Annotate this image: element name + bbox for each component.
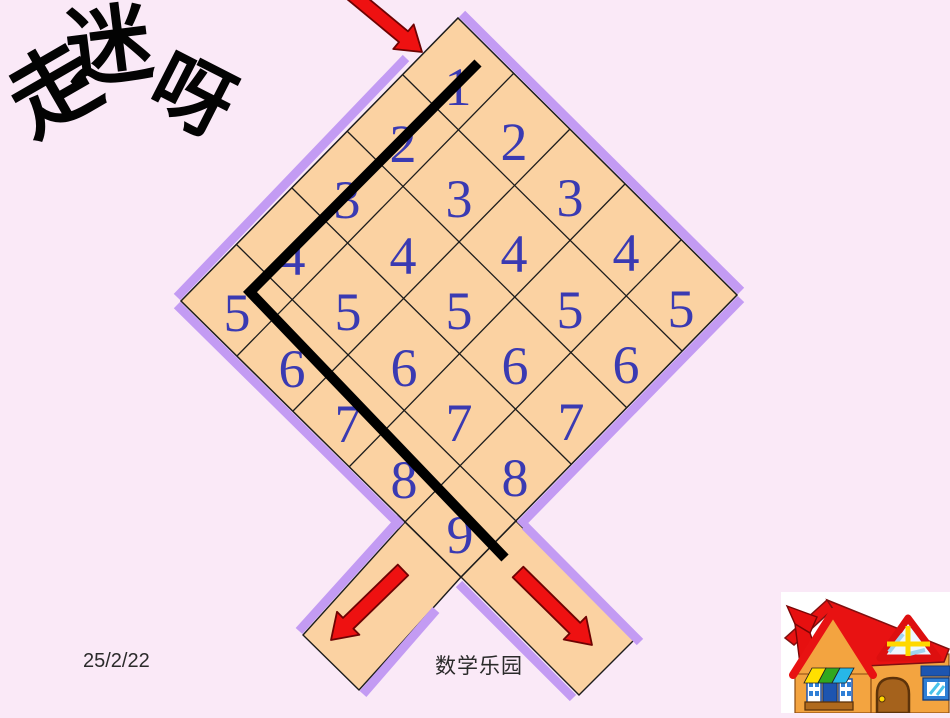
entry-arrow-icon bbox=[348, 0, 423, 52]
maze-cell-number: 5 bbox=[557, 280, 584, 340]
maze-cell-number: 7 bbox=[558, 392, 585, 452]
maze-cell-number: 6 bbox=[391, 338, 418, 398]
maze-cell-number: 3 bbox=[557, 168, 584, 228]
house-illustration bbox=[781, 592, 950, 713]
left-window-glass bbox=[847, 691, 851, 696]
house-door bbox=[877, 678, 909, 713]
maze-cell-number: 5 bbox=[668, 279, 695, 339]
maze-cell-number: 6 bbox=[613, 335, 640, 395]
maze-cell-number: 3 bbox=[446, 169, 473, 229]
house-icon bbox=[781, 592, 950, 713]
left-window-glass bbox=[809, 691, 813, 696]
house-door-knob bbox=[879, 696, 885, 702]
maze-cell-number: 4 bbox=[501, 224, 528, 284]
slide-canvas: 1 2 3 4 5 2 3 4 5 6 3 4 5 6 7 4 5 6 7 8 … bbox=[0, 0, 950, 713]
maze-cell-number: 5 bbox=[335, 282, 362, 342]
maze-cell-number: 2 bbox=[501, 112, 528, 172]
slide-date: 25/2/22 bbox=[83, 650, 150, 673]
left-window-glass bbox=[847, 682, 851, 687]
maze-cell-number: 4 bbox=[613, 223, 640, 283]
left-window-glass bbox=[841, 691, 845, 696]
maze-cell-number: 4 bbox=[390, 226, 417, 286]
maze-cell-number: 6 bbox=[502, 336, 529, 396]
maze-cell-number: 5 bbox=[446, 281, 473, 341]
maze-cell-number: 7 bbox=[446, 393, 473, 453]
maze-cell-number: 8 bbox=[502, 448, 529, 508]
right-window-awning bbox=[921, 666, 950, 676]
left-window-glass bbox=[815, 691, 819, 696]
slide-footer: 数学乐园 bbox=[435, 650, 523, 680]
left-window-box bbox=[805, 702, 853, 710]
